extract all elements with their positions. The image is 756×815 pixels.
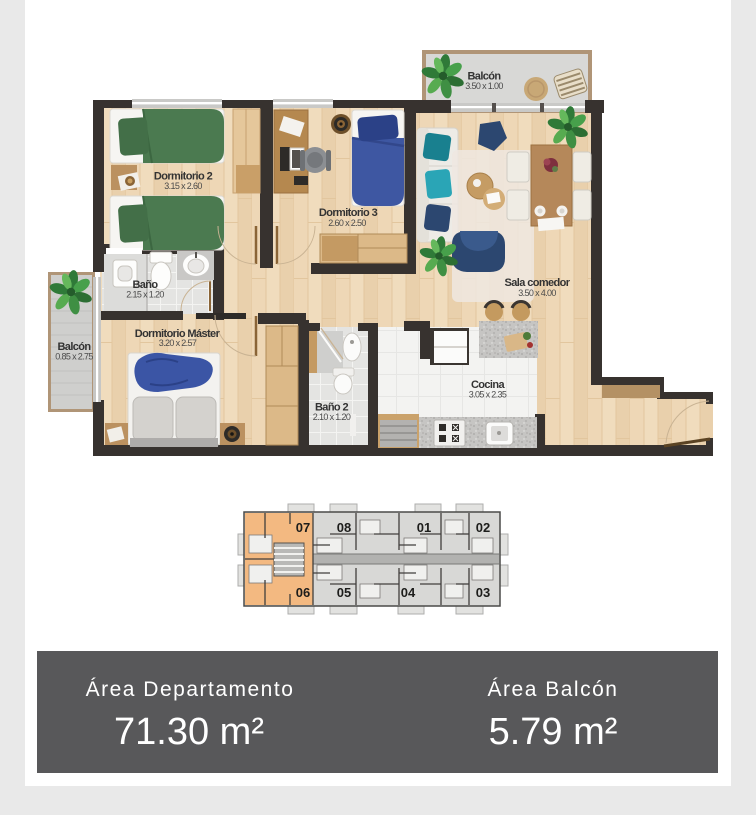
svg-text:04: 04 xyxy=(401,585,416,600)
svg-text:2.60 x 2.50: 2.60 x 2.50 xyxy=(328,218,366,228)
svg-text:3.05 x 2.35: 3.05 x 2.35 xyxy=(469,390,507,400)
svg-text:02: 02 xyxy=(476,520,490,535)
svg-text:03: 03 xyxy=(476,585,490,600)
svg-text:3.50 x 1.00: 3.50 x 1.00 xyxy=(465,81,503,91)
svg-text:3.15 x 2.60: 3.15 x 2.60 xyxy=(164,181,202,191)
svg-text:01: 01 xyxy=(417,520,431,535)
svg-text:3.50 x 4.00: 3.50 x 4.00 xyxy=(518,288,556,298)
svg-text:Área Departamento: Área Departamento xyxy=(86,678,295,701)
svg-text:07: 07 xyxy=(296,520,310,535)
svg-text:05: 05 xyxy=(337,585,351,600)
svg-text:08: 08 xyxy=(337,520,351,535)
svg-text:0.85 x 2.75: 0.85 x 2.75 xyxy=(55,352,93,362)
svg-text:5.79 m²: 5.79 m² xyxy=(489,711,618,753)
svg-text:2.10 x 1.20: 2.10 x 1.20 xyxy=(313,412,351,422)
svg-text:2.15 x 1.20: 2.15 x 1.20 xyxy=(126,290,164,300)
svg-text:3.20 x 2.57: 3.20 x 2.57 xyxy=(159,338,197,348)
svg-text:06: 06 xyxy=(296,585,310,600)
svg-text:71.30 m²: 71.30 m² xyxy=(114,711,264,753)
svg-text:Área Balcón: Área Balcón xyxy=(488,678,619,701)
